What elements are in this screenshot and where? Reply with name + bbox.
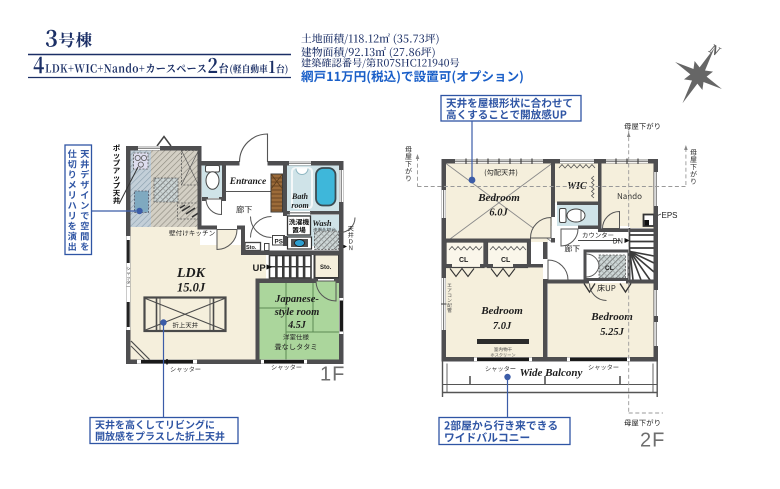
- svg-text:15.0J: 15.0J: [177, 281, 206, 295]
- svg-text:CL: CL: [605, 265, 614, 272]
- svg-text:Bedroom: Bedroom: [590, 311, 633, 323]
- svg-text:room: room: [291, 201, 308, 210]
- svg-text:Wash: Wash: [312, 218, 331, 228]
- svg-text:UP: UP: [253, 263, 267, 274]
- svg-text:Bedroom: Bedroom: [480, 305, 523, 317]
- svg-text:EPS: EPS: [662, 211, 678, 220]
- svg-text:CL: CL: [501, 257, 511, 264]
- svg-text:style room: style room: [274, 307, 320, 318]
- svg-text:Bedroom: Bedroom: [477, 192, 520, 204]
- svg-text:Bath: Bath: [291, 192, 309, 201]
- svg-text:Wide Balcony: Wide Balcony: [520, 367, 583, 379]
- svg-text:Japanese-: Japanese-: [274, 294, 319, 305]
- svg-text:7.0J: 7.0J: [493, 321, 512, 332]
- svg-text:Entrance: Entrance: [229, 177, 267, 187]
- svg-text:5.25J: 5.25J: [600, 327, 624, 338]
- svg-text:4.5J: 4.5J: [287, 320, 307, 331]
- svg-text:LDK: LDK: [176, 266, 207, 281]
- svg-text:2F: 2F: [640, 430, 665, 452]
- svg-text:PS: PS: [275, 239, 283, 246]
- svg-text:CL: CL: [459, 257, 469, 264]
- svg-text:6.0J: 6.0J: [489, 208, 508, 219]
- svg-text:Sto.: Sto.: [246, 245, 257, 251]
- svg-text:Sto.: Sto.: [320, 265, 332, 271]
- svg-text:1F: 1F: [320, 364, 345, 386]
